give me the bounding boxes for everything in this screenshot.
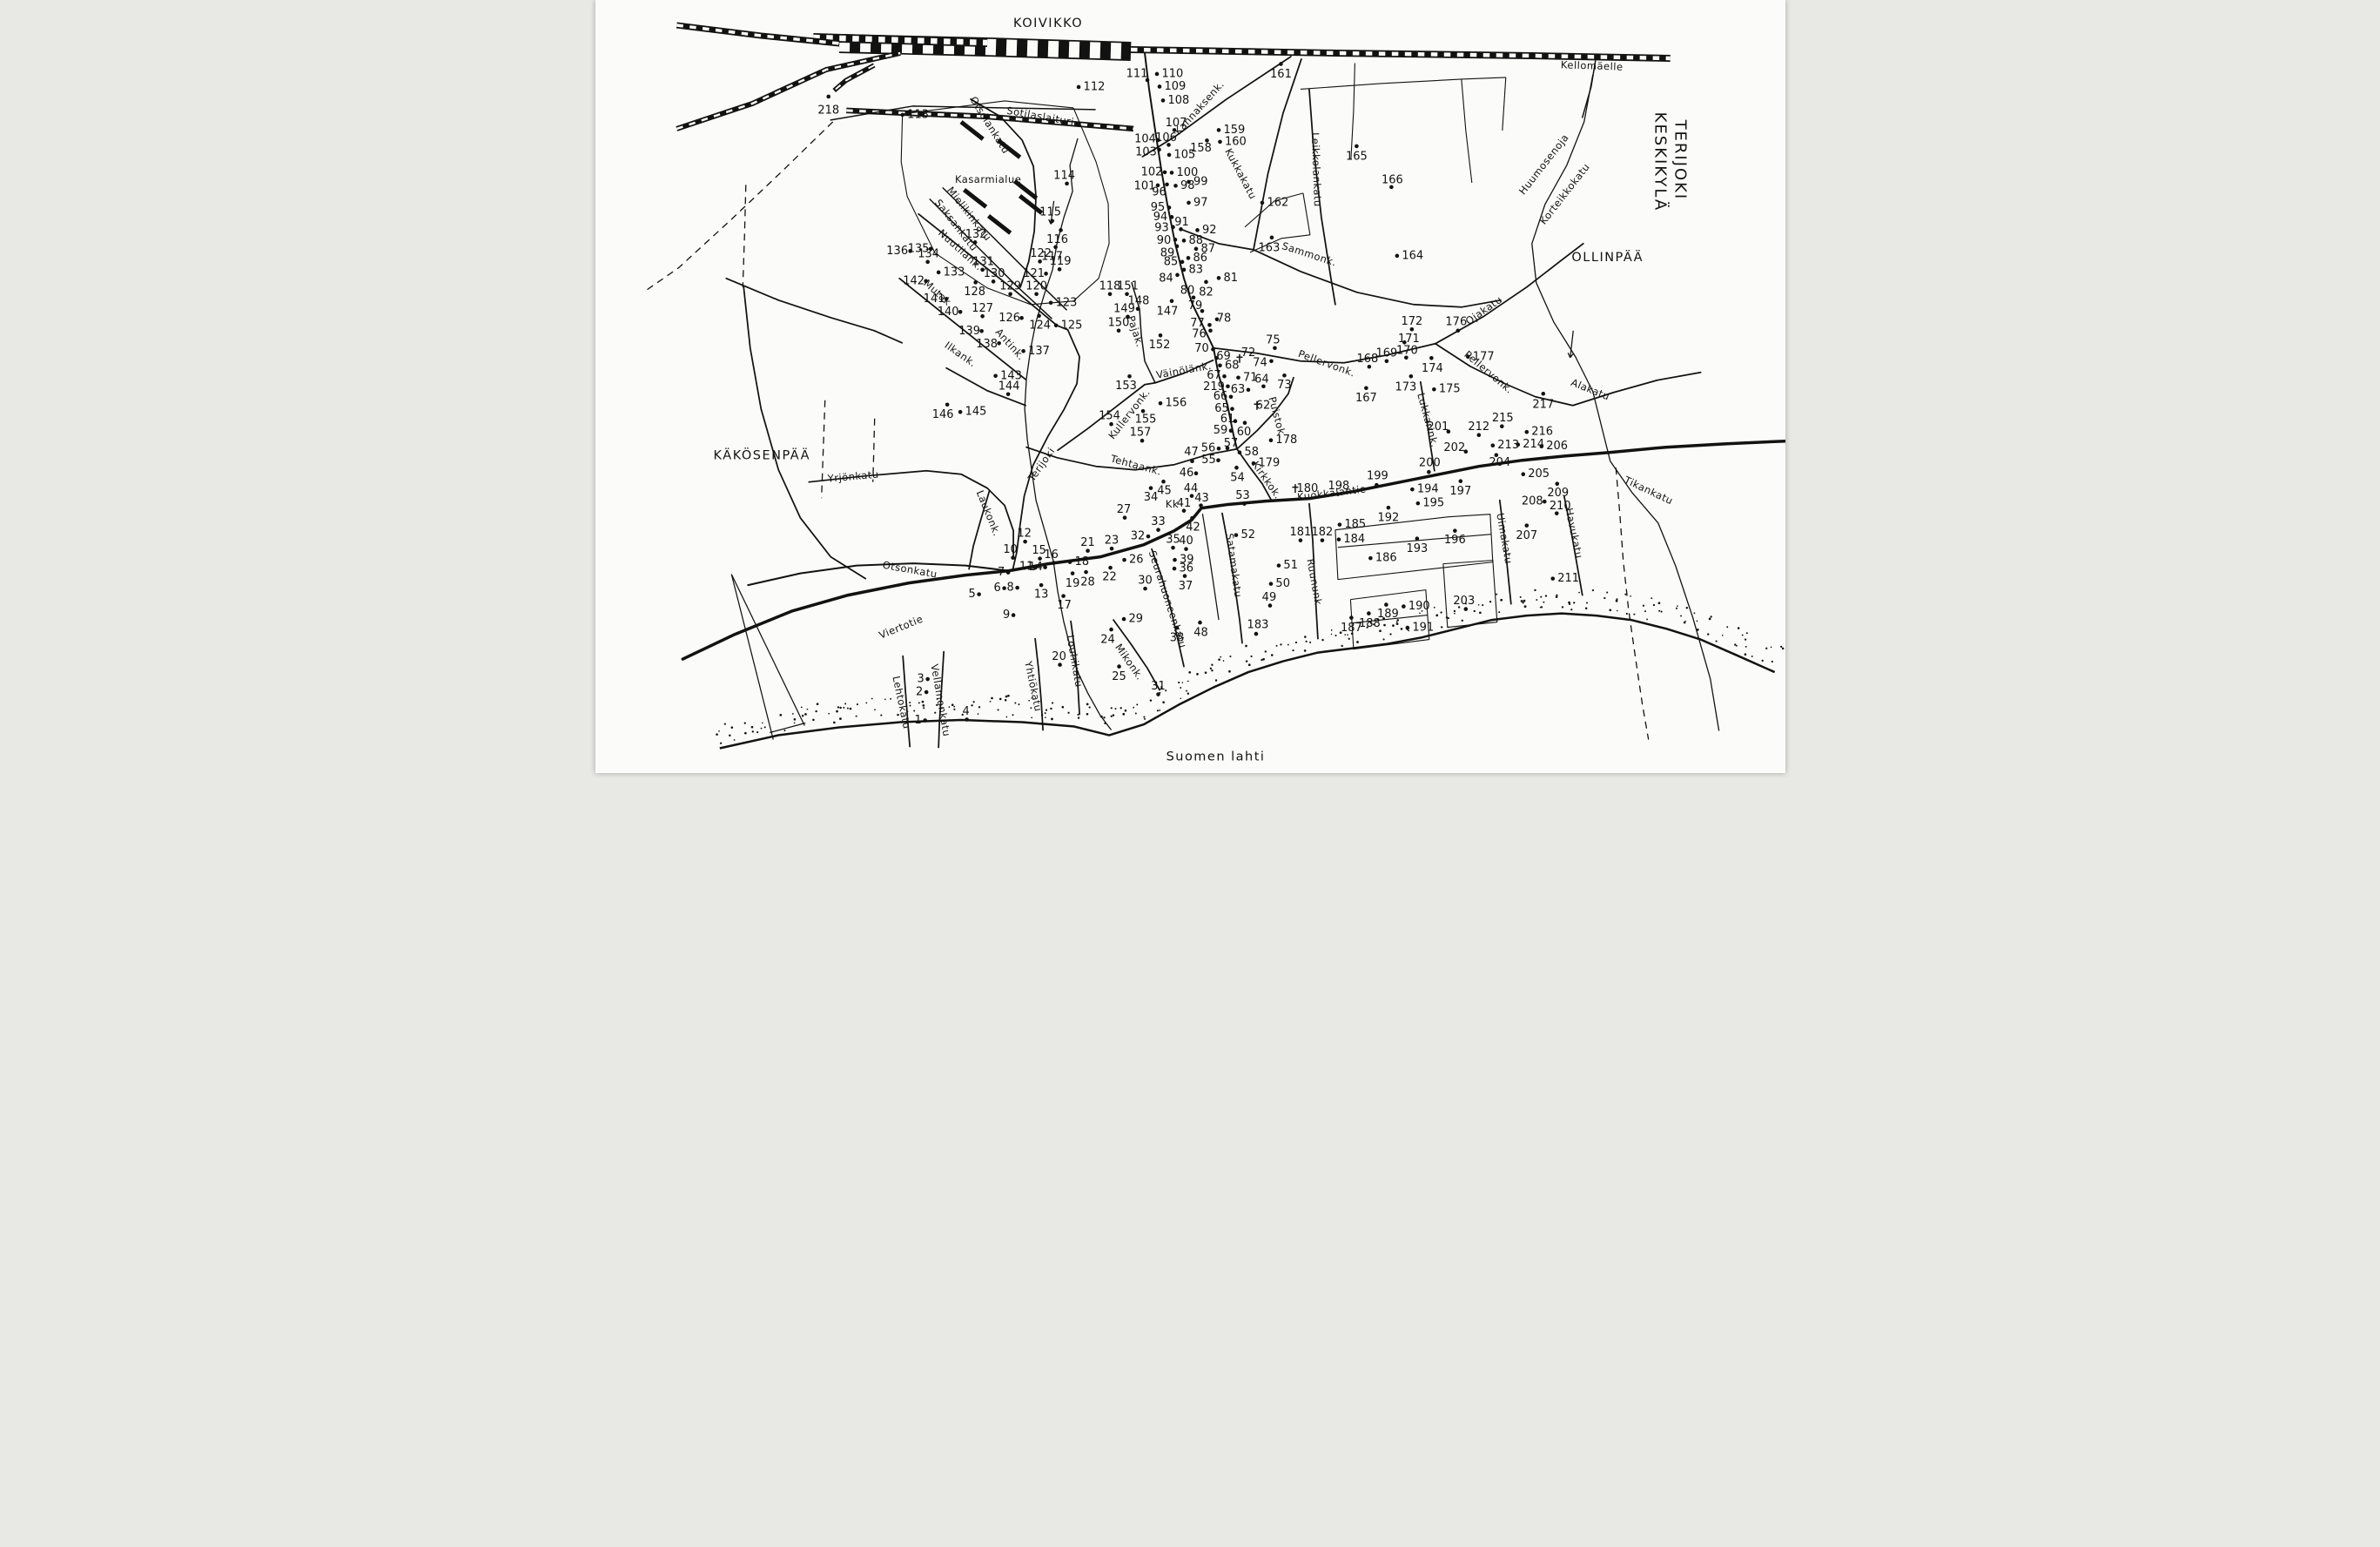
sand-dot xyxy=(1543,602,1544,603)
plot-dot xyxy=(1208,328,1213,333)
sand-dot xyxy=(1382,638,1384,640)
plot-dot xyxy=(924,690,928,695)
sand-dot xyxy=(723,723,725,725)
sand-dot xyxy=(846,708,848,710)
sand-dot xyxy=(1031,717,1032,719)
sand-dot xyxy=(953,706,955,708)
plot-number: 160 xyxy=(1224,135,1246,148)
sand-dot xyxy=(1356,641,1359,643)
sand-dot xyxy=(1270,654,1273,656)
sand-dot xyxy=(1018,703,1019,705)
sand-dot xyxy=(921,701,924,703)
plot-number: 195 xyxy=(1422,497,1444,510)
plot-number: 157 xyxy=(1129,427,1151,440)
plot-number: 199 xyxy=(1366,470,1388,483)
sand-dot xyxy=(1045,710,1046,711)
plot-dot xyxy=(1037,313,1041,318)
plot-dot xyxy=(908,249,912,253)
sand-dot xyxy=(1616,610,1617,612)
sand-dot xyxy=(1245,660,1247,662)
plot-number: 8 xyxy=(1006,582,1013,595)
plot-number: 193 xyxy=(1406,542,1428,555)
plot-dot xyxy=(1140,409,1145,414)
plot-number: 138 xyxy=(976,338,998,351)
plot-number: 127 xyxy=(971,302,993,315)
plot-number: 71 xyxy=(1242,371,1257,384)
plot-number: 156 xyxy=(1165,397,1187,410)
plot-dot xyxy=(1076,85,1080,90)
plot-number: 7 xyxy=(997,566,1004,579)
plot-dot xyxy=(1268,438,1273,442)
sand-dot xyxy=(1275,645,1277,647)
sand-dot xyxy=(1693,612,1695,614)
sand-dot xyxy=(1136,703,1138,705)
label-terijoki: TERIJOKI xyxy=(1671,119,1689,201)
sand-dot xyxy=(1715,641,1717,642)
plot-number: 144 xyxy=(998,380,1019,393)
plot-dot xyxy=(1269,359,1274,363)
sand-dot xyxy=(1389,633,1391,635)
plot-dot xyxy=(1158,333,1162,338)
plot-dot xyxy=(1216,128,1220,132)
plot-number: 19 xyxy=(1065,577,1079,590)
plot-dot xyxy=(977,592,981,596)
sand-dot xyxy=(1744,638,1745,640)
sand-dot xyxy=(1061,706,1064,709)
plot-number: 218 xyxy=(817,104,839,117)
plot-number: 181 xyxy=(1289,526,1311,539)
sand-dot xyxy=(762,723,763,724)
sand-dot xyxy=(1585,602,1587,603)
sand-dot xyxy=(1498,611,1500,613)
sand-dot xyxy=(1630,595,1631,597)
plot-number: 57 xyxy=(1223,437,1238,450)
plot-dot xyxy=(1246,387,1250,392)
sand-dot xyxy=(948,706,950,708)
sand-dot xyxy=(913,710,915,711)
sand-dot xyxy=(802,716,803,717)
plot-number: 153 xyxy=(1115,380,1137,393)
sand-dot xyxy=(1119,707,1121,709)
plot-number: 26 xyxy=(1129,554,1144,567)
sand-dot xyxy=(1684,621,1686,622)
plot-number: 103 xyxy=(1135,145,1157,158)
plot-dot xyxy=(1053,246,1058,250)
sand-dot xyxy=(793,723,795,724)
plot-number: 18 xyxy=(1074,555,1089,568)
label-kasarmialue: Kasarmialue xyxy=(954,173,1020,185)
sand-dot xyxy=(1708,618,1711,621)
plot-number: 10 xyxy=(1003,543,1018,556)
plot-number: 219 xyxy=(1203,380,1225,393)
sand-dot xyxy=(1675,608,1677,609)
plot-number: 37 xyxy=(1178,580,1193,593)
plot-number: 111 xyxy=(1126,67,1147,80)
sand-dot xyxy=(1710,615,1711,617)
sand-dot xyxy=(998,698,1001,701)
plot-number: 69 xyxy=(1216,350,1231,363)
plot-dot xyxy=(1260,201,1264,205)
plot-dot xyxy=(1276,563,1281,568)
plot-dot xyxy=(1122,558,1126,562)
plot-number: 196 xyxy=(1443,534,1465,547)
plot-number: 32 xyxy=(1130,530,1145,543)
sand-dot xyxy=(1112,714,1113,716)
sand-dot xyxy=(1305,641,1307,642)
sand-dot xyxy=(793,718,796,721)
plot-dot xyxy=(1541,392,1545,396)
plot-number: 122 xyxy=(1030,247,1052,260)
sand-dot xyxy=(1473,610,1475,612)
plot-number: 146 xyxy=(931,408,953,421)
sand-dot xyxy=(1204,671,1207,674)
sand-dot xyxy=(1012,714,1013,716)
plot-number: 9 xyxy=(1002,609,1009,622)
sand-dot xyxy=(1523,600,1525,602)
map-point-69: 69 xyxy=(1214,350,1231,363)
sand-dot xyxy=(1781,648,1783,649)
sand-dot xyxy=(1383,624,1386,627)
label-suomen-lahti: Suomen lahti xyxy=(1166,750,1265,764)
label-kk: Kk xyxy=(1165,498,1178,510)
plot-number: 128 xyxy=(964,286,985,299)
sand-dot xyxy=(812,719,814,721)
plot-number: 54 xyxy=(1230,472,1245,485)
plot-dot xyxy=(1190,459,1194,463)
plot-number: 130 xyxy=(983,267,1005,280)
sand-dot xyxy=(890,698,891,700)
sand-dot xyxy=(1735,645,1737,647)
plot-number: 169 xyxy=(1375,346,1397,360)
sand-dot xyxy=(1633,614,1635,615)
plot-dot xyxy=(936,271,940,275)
plot-number: 23 xyxy=(1104,535,1119,548)
sand-dot xyxy=(1122,713,1125,716)
plot-number: 25 xyxy=(1112,670,1126,683)
plot-number: 129 xyxy=(999,279,1021,293)
plot-number: 163 xyxy=(1258,241,1280,254)
plot-dot xyxy=(1117,664,1121,669)
sand-dot xyxy=(816,703,818,705)
plot-dot xyxy=(1216,447,1220,451)
plot-number: 84 xyxy=(1159,272,1173,285)
plot-dot xyxy=(1409,374,1413,379)
sand-dot xyxy=(1395,622,1398,625)
plot-dot xyxy=(1193,247,1198,252)
sand-dot xyxy=(716,733,718,736)
sand-dot xyxy=(1765,648,1767,649)
sand-dot xyxy=(1523,605,1526,608)
plot-dot xyxy=(1005,570,1010,575)
label-leikkolankatu: Leikkolankatu xyxy=(1308,132,1323,207)
map-point-139: 139 xyxy=(958,325,984,338)
plot-dot xyxy=(1172,567,1176,571)
plot-number: 24 xyxy=(1100,634,1115,647)
plot-dot xyxy=(1268,582,1273,586)
plot-dot xyxy=(1061,594,1066,598)
sand-dot xyxy=(1479,611,1482,614)
sand-dot xyxy=(1181,682,1183,683)
plot-number: 151 xyxy=(1117,279,1139,293)
plot-dot xyxy=(826,95,830,99)
plot-dot xyxy=(1148,486,1153,490)
sand-dot xyxy=(1051,718,1053,721)
sand-dot xyxy=(951,703,953,706)
plot-number: 204 xyxy=(1489,456,1510,469)
plot-number: 161 xyxy=(1270,68,1292,81)
sand-dot xyxy=(1400,628,1402,630)
plot-number: 4 xyxy=(962,705,969,718)
sand-dot xyxy=(1536,599,1537,601)
plot-number: 60 xyxy=(1236,426,1251,439)
sand-dot xyxy=(1330,629,1332,631)
sand-dot xyxy=(1519,596,1521,598)
plot-number: 6 xyxy=(993,582,1000,595)
plot-dot xyxy=(925,677,930,682)
sand-dot xyxy=(1228,670,1231,673)
plot-number: 162 xyxy=(1267,196,1288,209)
sand-dot xyxy=(1196,673,1199,676)
plot-number: 172 xyxy=(1401,315,1422,328)
sand-dot xyxy=(744,732,747,735)
sand-dot xyxy=(909,702,911,703)
plot-number: 2 xyxy=(916,686,923,699)
sand-dot xyxy=(1050,708,1052,710)
sand-dot xyxy=(1134,712,1136,714)
map-point-126: 126 xyxy=(998,312,1024,325)
map-point-79: 79 xyxy=(1187,299,1204,313)
sand-dot xyxy=(971,704,972,706)
sand-dot xyxy=(1658,610,1660,612)
plot-dot xyxy=(1043,565,1047,569)
plot-number: 102 xyxy=(1140,165,1162,178)
plot-dot xyxy=(1048,301,1052,306)
plot-number: 125 xyxy=(1060,319,1082,332)
plot-dot xyxy=(1067,560,1072,564)
plot-dot xyxy=(1109,628,1113,632)
plot-number: 209 xyxy=(1547,487,1569,500)
sand-dot xyxy=(1696,621,1698,622)
sand-dot xyxy=(884,699,885,701)
plot-number: 183 xyxy=(1247,619,1268,632)
plot-dot xyxy=(1222,374,1227,379)
map-point-57: 57 xyxy=(1223,437,1238,450)
sand-dot xyxy=(1570,609,1572,610)
sand-dot xyxy=(1110,707,1112,709)
label-koivikko: KOIVIKKO xyxy=(1013,17,1083,30)
plot-dot xyxy=(1521,472,1525,476)
plot-number: 97 xyxy=(1193,196,1207,209)
sand-dot xyxy=(1745,646,1746,648)
plot-number: 40 xyxy=(1179,535,1193,548)
sand-dot xyxy=(1086,703,1088,706)
sand-dot xyxy=(743,723,745,724)
plot-dot xyxy=(1236,375,1240,380)
sand-dot xyxy=(763,726,765,728)
plot-dot xyxy=(1429,356,1434,360)
sand-dot xyxy=(1454,613,1456,615)
plot-dot xyxy=(1127,374,1132,379)
sand-dot xyxy=(1159,710,1160,711)
plot-dot xyxy=(1207,323,1212,327)
sand-dot xyxy=(1482,604,1483,606)
sand-dot xyxy=(1287,644,1289,646)
sand-dot xyxy=(1045,716,1046,718)
plot-number: 65 xyxy=(1214,402,1229,415)
sand-dot xyxy=(1680,615,1682,617)
sand-dot xyxy=(1250,656,1252,657)
plot-number: 213 xyxy=(1497,439,1519,452)
plot-number: 206 xyxy=(1546,440,1568,453)
sand-dot xyxy=(1584,608,1586,609)
plot-dot xyxy=(1182,574,1187,578)
plot-dot xyxy=(1458,479,1462,483)
sand-dot xyxy=(1573,602,1575,603)
sand-dot xyxy=(751,730,753,732)
plot-number: 92 xyxy=(1201,224,1216,237)
sand-dot xyxy=(1211,664,1213,666)
plot-number: 47 xyxy=(1184,446,1199,459)
plot-dot xyxy=(1490,443,1495,447)
sand-dot xyxy=(1744,653,1746,656)
plot-number: 83 xyxy=(1188,263,1203,276)
sand-dot xyxy=(923,707,924,709)
plot-number: 33 xyxy=(1151,515,1166,528)
sand-dot xyxy=(1162,701,1165,703)
plot-number: 152 xyxy=(1148,339,1170,352)
plot-dot xyxy=(923,718,927,723)
plot-number: 3 xyxy=(917,673,924,686)
plot-number: 34 xyxy=(1143,491,1158,504)
plot-dot xyxy=(1269,236,1274,240)
map-point-135: 135 xyxy=(907,242,932,255)
sand-dot xyxy=(1660,611,1662,613)
sand-dot xyxy=(733,739,735,741)
sand-dot xyxy=(1435,615,1438,617)
plot-dot xyxy=(1415,501,1420,506)
plot-number: 120 xyxy=(1025,279,1047,293)
plot-number: 184 xyxy=(1343,533,1365,546)
plot-dot xyxy=(1084,570,1088,575)
plot-number: 12 xyxy=(1017,528,1032,541)
plot-dot xyxy=(1218,140,1222,145)
plot-number: 135 xyxy=(907,242,929,255)
plot-dot xyxy=(1011,613,1015,617)
sand-dot xyxy=(1578,592,1580,594)
plot-dot xyxy=(1524,430,1529,434)
map-point-121: 121 xyxy=(1023,267,1048,280)
plot-number: 106 xyxy=(1155,131,1177,145)
plot-number: 91 xyxy=(1174,216,1189,229)
plot-dot xyxy=(1108,566,1113,570)
sand-dot xyxy=(1156,710,1158,711)
plot-dot xyxy=(1204,280,1208,285)
plot-number: 79 xyxy=(1187,299,1202,313)
sand-dot xyxy=(1014,703,1016,704)
plot-number: 139 xyxy=(958,325,980,338)
sand-dot xyxy=(729,735,730,737)
plot-dot xyxy=(1198,621,1202,625)
sand-dot xyxy=(1609,609,1611,611)
sand-dot xyxy=(1539,607,1541,609)
plot-number: 164 xyxy=(1402,249,1423,262)
sand-dot xyxy=(1770,647,1772,649)
plot-dot xyxy=(1186,256,1190,260)
plot-number: 136 xyxy=(886,245,908,258)
plot-number: 49 xyxy=(1261,591,1276,604)
sand-dot xyxy=(1005,716,1007,718)
plot-number: 48 xyxy=(1193,627,1208,640)
plot-dot xyxy=(1157,84,1161,89)
sand-dot xyxy=(972,701,974,703)
plot-number: 35 xyxy=(1166,534,1180,547)
plot-number: 50 xyxy=(1275,577,1290,590)
plot-number: 73 xyxy=(1277,379,1292,392)
plot-number: 171 xyxy=(1397,333,1419,346)
plot-number: 58 xyxy=(1244,446,1259,459)
plot-number: 200 xyxy=(1418,457,1440,470)
sand-dot xyxy=(1745,632,1747,634)
sand-dot xyxy=(1341,645,1342,647)
sand-dot xyxy=(922,704,924,707)
map-point-78: 78 xyxy=(1214,312,1231,325)
plot-number: 45 xyxy=(1157,485,1172,498)
map-point-138: 138 xyxy=(976,338,1001,351)
plot-dot xyxy=(1211,347,1215,352)
label-k-k-senp-: KÄKÖSENPÄÄ xyxy=(713,447,810,463)
plot-dot xyxy=(1410,488,1415,492)
sand-dot xyxy=(1218,658,1220,661)
sand-dot xyxy=(1591,589,1593,591)
sand-dot xyxy=(1110,716,1112,717)
sand-dot xyxy=(1606,591,1608,593)
map-page: 1234567891011121314151617181920212223242… xyxy=(595,0,1785,773)
plot-dot xyxy=(1367,611,1371,615)
plot-number: 13 xyxy=(1033,589,1048,602)
sand-dot xyxy=(1392,624,1395,627)
plot-number: 208 xyxy=(1521,495,1543,508)
plot-number: 191 xyxy=(1412,622,1434,635)
plot-dot xyxy=(1349,615,1354,620)
plot-number: 77 xyxy=(1190,317,1205,330)
sand-dot xyxy=(1544,595,1546,596)
plot-dot xyxy=(1161,480,1166,484)
sand-dot xyxy=(978,706,979,708)
plot-dot xyxy=(1173,558,1177,562)
plot-number: 159 xyxy=(1223,124,1245,137)
sand-dot xyxy=(1149,699,1151,701)
sand-dot xyxy=(1247,663,1250,666)
plot-dot xyxy=(1355,145,1359,149)
plot-number: 207 xyxy=(1516,529,1537,542)
plot-dot xyxy=(1216,276,1220,280)
plot-number: 82 xyxy=(1199,286,1214,299)
plot-dot xyxy=(1166,153,1171,158)
sand-dot xyxy=(1180,687,1181,689)
sand-dot xyxy=(1124,710,1126,712)
plot-number: 95 xyxy=(1150,201,1165,214)
sand-dot xyxy=(1489,601,1490,602)
plot-number: 126 xyxy=(998,312,1020,325)
sand-dot xyxy=(1292,649,1294,651)
plot-dot xyxy=(1195,228,1200,232)
plot-dot xyxy=(1154,72,1159,77)
sand-dot xyxy=(839,717,842,720)
plot-dot xyxy=(1427,470,1431,474)
plot-number: 59 xyxy=(1213,424,1227,437)
sand-dot xyxy=(1245,645,1247,648)
plot-number: 53 xyxy=(1235,489,1250,502)
